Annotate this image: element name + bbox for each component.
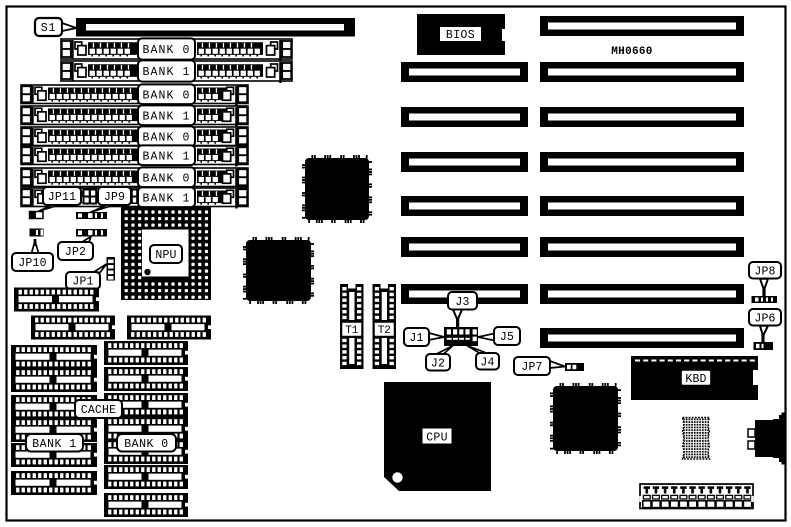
svg-text:NPU: NPU — [155, 249, 176, 262]
svg-text:JP11: JP11 — [48, 191, 76, 204]
svg-text:J3: J3 — [455, 296, 469, 309]
svg-text:BIOS: BIOS — [446, 29, 475, 42]
svg-text:BANK 0: BANK 0 — [142, 89, 190, 102]
svg-text:MH0660: MH0660 — [611, 46, 652, 58]
svg-text:J2: J2 — [431, 357, 445, 370]
svg-text:JP1: JP1 — [72, 276, 93, 289]
svg-text:J4: J4 — [480, 356, 494, 369]
svg-text:S1: S1 — [41, 22, 56, 35]
svg-text:JP8: JP8 — [754, 265, 775, 278]
svg-text:BANK 0: BANK 0 — [142, 131, 190, 144]
svg-text:J5: J5 — [500, 331, 514, 344]
svg-text:BANK 1: BANK 1 — [32, 438, 76, 451]
svg-text:JP9: JP9 — [104, 191, 125, 204]
svg-text:JP2: JP2 — [65, 246, 86, 259]
svg-text:BANK 1: BANK 1 — [142, 110, 190, 123]
svg-text:JP10: JP10 — [18, 257, 46, 270]
svg-text:BANK 0: BANK 0 — [142, 172, 190, 185]
svg-text:JP7: JP7 — [521, 361, 542, 374]
svg-text:BANK 1: BANK 1 — [142, 192, 190, 205]
svg-text:J1: J1 — [409, 332, 423, 345]
svg-text:BANK 1: BANK 1 — [142, 66, 190, 79]
svg-text:CACHE: CACHE — [81, 404, 117, 417]
svg-text:JP6: JP6 — [754, 312, 775, 325]
svg-text:T1: T1 — [345, 325, 359, 337]
svg-text:CPU: CPU — [426, 431, 448, 444]
svg-text:BANK 0: BANK 0 — [142, 44, 190, 57]
svg-text:BANK 0: BANK 0 — [124, 438, 168, 451]
svg-text:BANK 1: BANK 1 — [142, 150, 190, 163]
svg-text:KBD: KBD — [685, 373, 706, 386]
svg-text:T2: T2 — [378, 325, 391, 337]
